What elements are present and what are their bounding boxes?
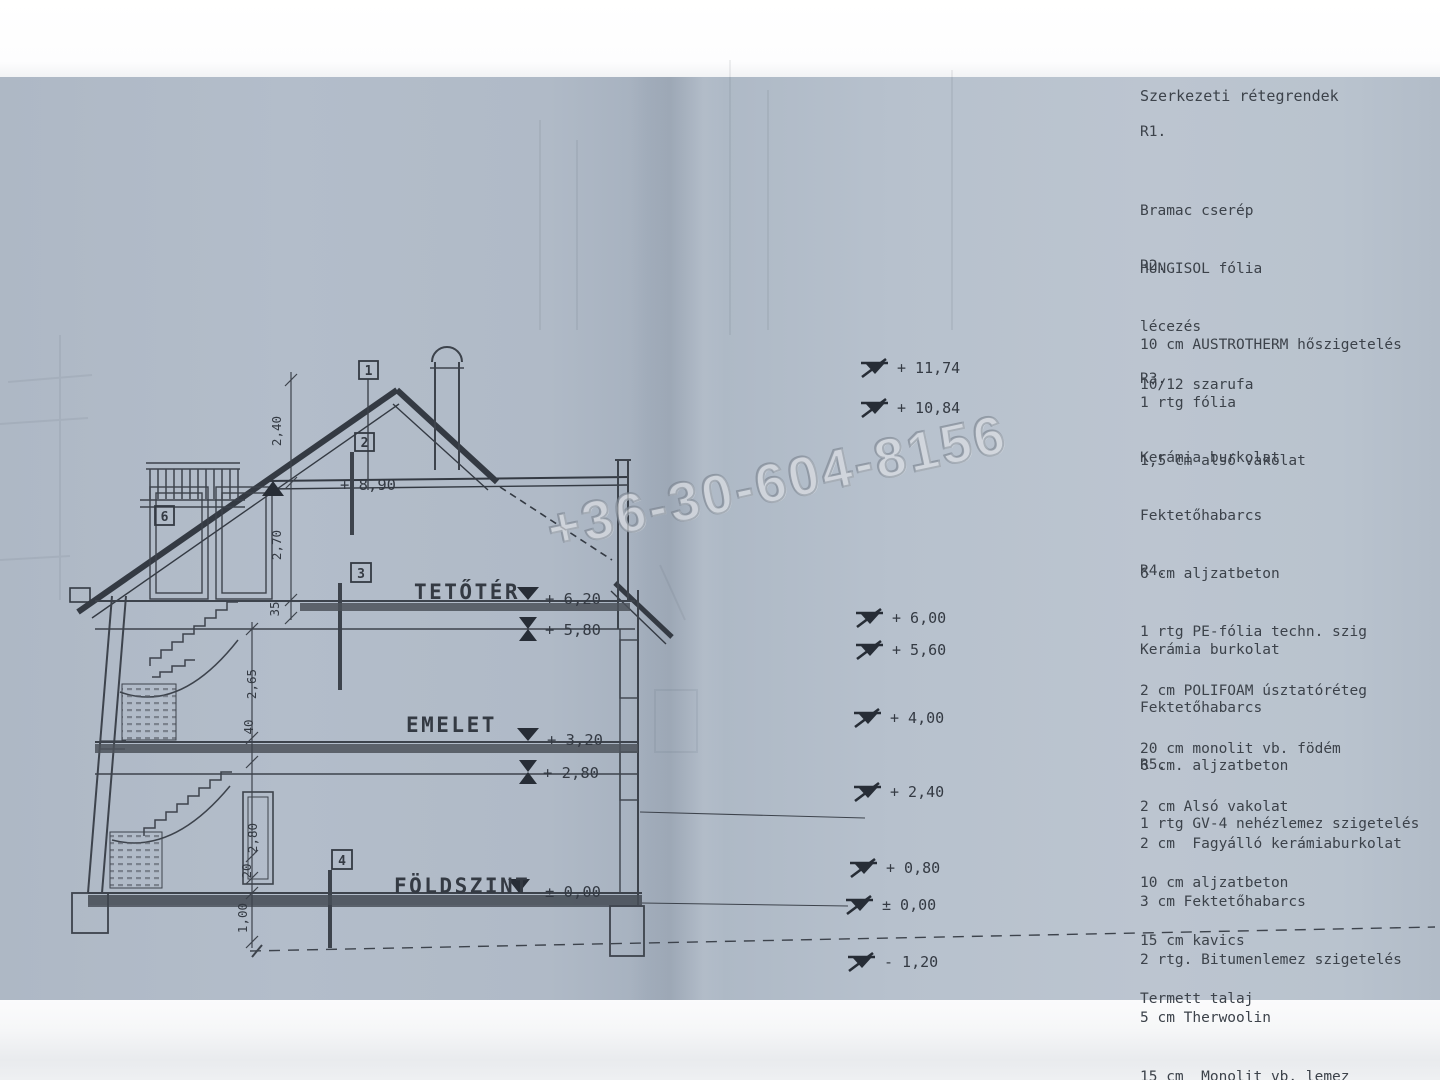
legend-section-id: R3. [1140,370,1166,389]
svg-text:FÖLDSZINT: FÖLDSZINT [394,873,530,898]
legend-line: Bramac cserép [1140,202,1262,221]
legend-line: Fektetőhabarcs [1140,507,1367,526]
svg-text:3: 3 [357,567,365,582]
svg-text:+ 11,74: + 11,74 [897,359,960,377]
room-labels: TETŐTÉR EMELET FÖLDSZINT [394,579,530,898]
svg-text:2,70: 2,70 [269,530,284,560]
legend-line: Kerámia burkolat [1140,641,1419,660]
svg-text:35: 35 [267,601,282,616]
svg-text:1: 1 [365,364,373,379]
svg-text:+ 5,60: + 5,60 [892,641,946,659]
dimension-chains [246,372,297,948]
svg-text:1,00: 1,00 [235,903,250,933]
svg-text:+ 3,20: + 3,20 [547,731,603,749]
svg-text:+ 0,80: + 0,80 [886,859,940,877]
svg-text:+ 2,40: + 2,40 [890,783,944,801]
svg-text:+ 8,90: + 8,90 [340,476,396,494]
walls [88,379,638,948]
svg-text:- 1,20: - 1,20 [884,953,938,971]
legend-line: 6 cm aljzatbeton [1140,565,1367,584]
svg-text:2,80: 2,80 [245,823,260,853]
svg-text:+ 2,80: + 2,80 [543,764,599,782]
legend-line: 15 cm Monolit vb. lemez [1140,1068,1402,1080]
legend-line: 5 cm Therwoolin [1140,1009,1402,1028]
svg-text:EMELET: EMELET [406,713,497,737]
legend-line: 6 cm. aljzatbeton [1140,757,1419,776]
svg-text:TETŐTÉR: TETŐTÉR [414,579,520,604]
svg-text:+ 4,00: + 4,00 [890,709,944,727]
svg-text:+ 6,20: + 6,20 [545,590,601,608]
bleed-through-lines [0,60,952,752]
chimney [430,347,464,470]
svg-text:+ 6,00: + 6,00 [892,609,946,627]
scanned-drawing-page: 2,40 2,70 35 2,65 40 2,80 20 1,00 1 2 3 … [0,0,1440,1080]
svg-text:20: 20 [239,863,254,878]
svg-text:2,65: 2,65 [244,669,259,699]
svg-text:± 0,00: ± 0,00 [882,896,936,914]
legend-line: Fektetőhabarcs [1140,699,1419,718]
svg-text:± 0,00: ± 0,00 [545,883,601,901]
attic-windows [150,487,272,599]
legend-section-id: R5. [1140,756,1166,775]
svg-text:2: 2 [361,436,369,451]
legend-section-id: R2. [1140,257,1166,276]
level-marks [262,481,539,893]
legend-section-id: R4. [1140,562,1166,581]
legend-line: Kerámia burkolat [1140,449,1367,468]
legend-line: 3 cm Fektetőhabarcs [1140,893,1402,912]
legend-title: Szerkezeti rétegrendek [1140,87,1339,106]
legend-line: 2 cm Fagyálló kerámiaburkolat [1140,835,1402,854]
legend-line: 2 rtg. Bitumenlemez szigetelés [1140,951,1402,970]
legend-line: 10 cm AUSTROTHERM hőszigetelés [1140,336,1402,355]
svg-text:4: 4 [338,854,346,869]
floor-slabs [88,601,642,906]
svg-text:2,40: 2,40 [269,416,284,446]
legend-section-id: R1. [1140,123,1166,142]
svg-text:40: 40 [241,719,256,734]
svg-text:+ 5,80: + 5,80 [545,621,601,639]
legend-section-lines: 2 cm Fagyálló kerámiaburkolat 3 cm Fekte… [1140,796,1402,1080]
leader-lines [640,812,865,906]
svg-text:6: 6 [161,510,169,525]
